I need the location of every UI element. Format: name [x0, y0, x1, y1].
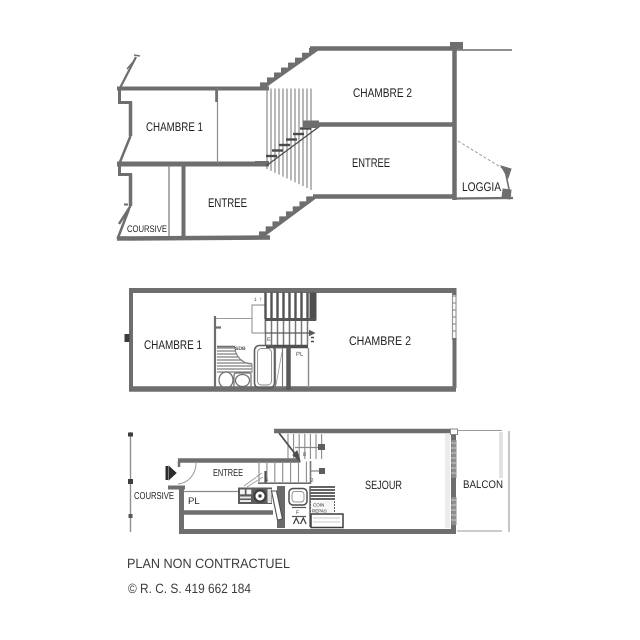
- svg-text:PL: PL: [188, 496, 200, 507]
- svg-text:REPAS: REPAS: [312, 509, 327, 514]
- svg-text:COURSIVE: COURSIVE: [134, 491, 174, 502]
- svg-text:COIN: COIN: [313, 503, 324, 508]
- svg-text:2: 2: [311, 478, 314, 484]
- svg-text:LOGGIA: LOGGIA: [462, 180, 502, 194]
- svg-text:COURSIVE: COURSIVE: [127, 224, 167, 235]
- svg-text:8: 8: [303, 452, 306, 458]
- svg-text:CHAMBRE 1: CHAMBRE 1: [146, 120, 203, 134]
- svg-text:ENTREE: ENTREE: [352, 156, 390, 170]
- svg-text:CHAMBRE 1: CHAMBRE 1: [144, 338, 202, 352]
- svg-text:PLAN NON CONTRACTUEL: PLAN NON CONTRACTUEL: [127, 556, 290, 571]
- svg-text:CHAMBRE 2: CHAMBRE 2: [349, 334, 411, 348]
- svg-text:CHAMBRE 2: CHAMBRE 2: [353, 86, 412, 100]
- svg-text:↑: ↑: [259, 297, 262, 303]
- svg-text:ENTREE: ENTREE: [213, 468, 243, 479]
- svg-text:E: E: [267, 337, 271, 343]
- svg-text:BALCON: BALCON: [463, 479, 503, 491]
- svg-text:ENTREE: ENTREE: [208, 196, 247, 210]
- svg-text:1: 1: [254, 297, 257, 303]
- svg-text:SEJOUR: SEJOUR: [365, 478, 402, 492]
- svg-text:© R. C. S. 419 662 184: © R. C. S. 419 662 184: [128, 581, 251, 596]
- svg-text:PL: PL: [296, 351, 304, 358]
- svg-text:SDB: SDB: [235, 346, 246, 352]
